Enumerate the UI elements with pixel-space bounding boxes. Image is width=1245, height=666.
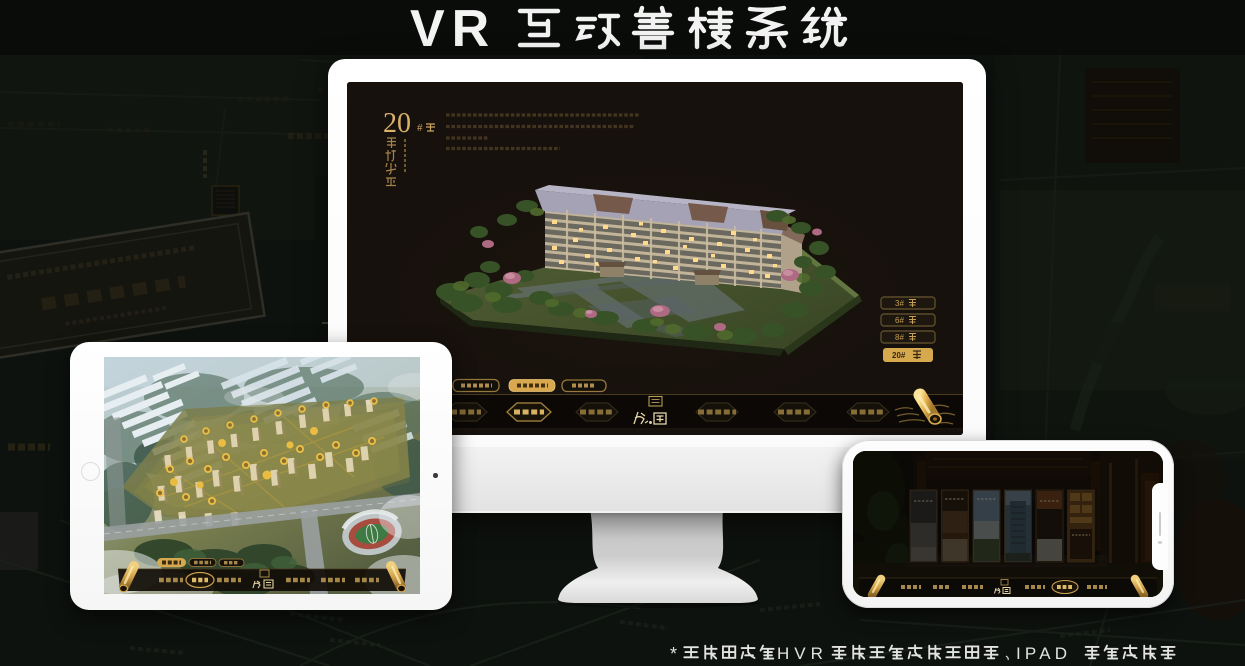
svg-text:#: # — [417, 122, 423, 134]
svg-text:*: * — [670, 644, 677, 664]
svg-text:HVR: HVR — [777, 644, 828, 663]
svg-text:VR: VR — [410, 0, 496, 58]
svg-text:6#: 6# — [895, 316, 904, 325]
svg-text:8#: 8# — [895, 333, 904, 342]
svg-text:20#: 20# — [892, 351, 906, 360]
svg-text:3#: 3# — [895, 299, 904, 308]
svg-text:IPAD: IPAD — [1016, 644, 1071, 663]
svg-text:20: 20 — [383, 108, 411, 139]
